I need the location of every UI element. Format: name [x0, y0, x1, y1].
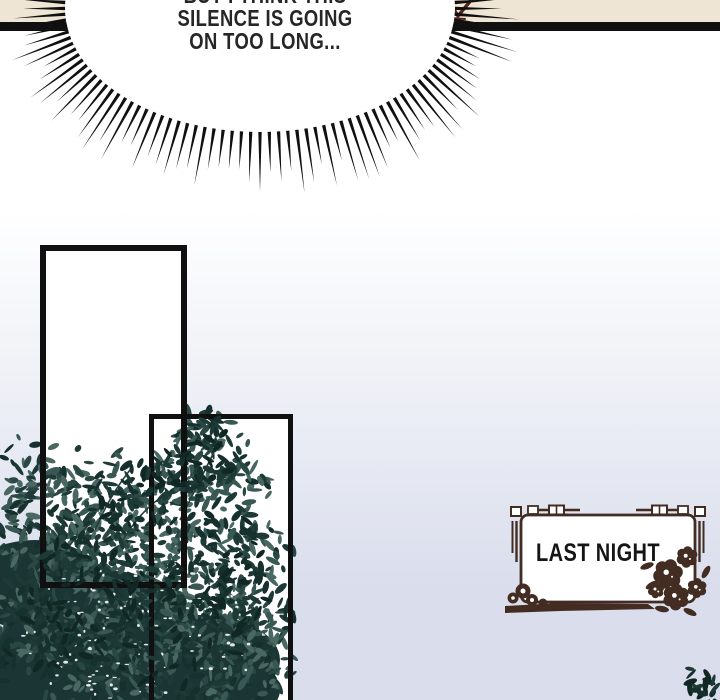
speech-line: ON TOO LONG... [93, 30, 437, 53]
comic-artwork [0, 0, 720, 700]
speech-bubble-text: BUT I THINK THIS SILENCE IS GOING ON TOO… [93, 0, 437, 53]
caption-label: LAST NIGHT [534, 540, 662, 566]
webtoon-page: BUT I THINK THIS SILENCE IS GOING ON TOO… [0, 0, 720, 700]
speech-line: SILENCE IS GOING [93, 7, 437, 30]
